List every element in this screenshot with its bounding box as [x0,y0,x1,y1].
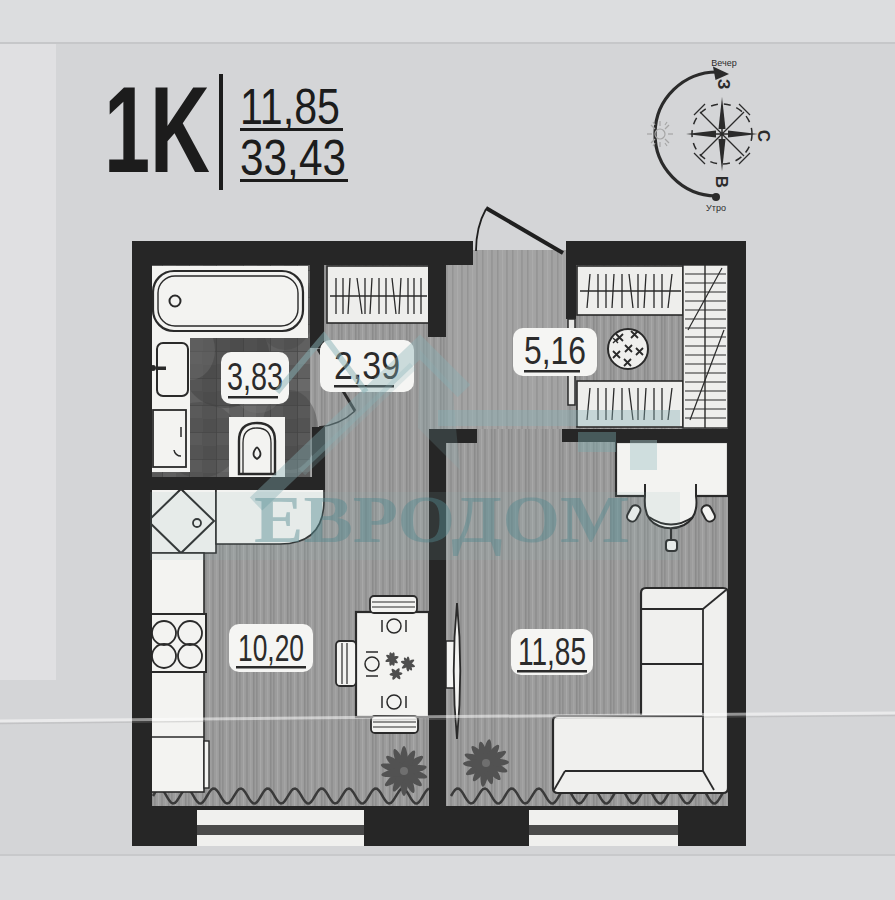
svg-text:Утро: Утро [706,203,726,213]
svg-text:5,16: 5,16 [524,330,586,372]
svg-text:Вечер: Вечер [711,58,736,68]
svg-text:3,83: 3,83 [227,356,283,398]
svg-text:В: В [712,176,731,188]
svg-text:1K: 1K [104,62,210,198]
svg-text:10,20: 10,20 [238,628,304,669]
svg-text:11,85: 11,85 [240,79,340,135]
svg-text:11,85: 11,85 [518,631,586,673]
svg-text:ЕВРОДОМ: ЕВРОДОМ [254,481,630,557]
svg-text:З: З [714,79,733,90]
svg-text:С: С [754,130,773,142]
svg-text:33,43: 33,43 [240,130,346,186]
